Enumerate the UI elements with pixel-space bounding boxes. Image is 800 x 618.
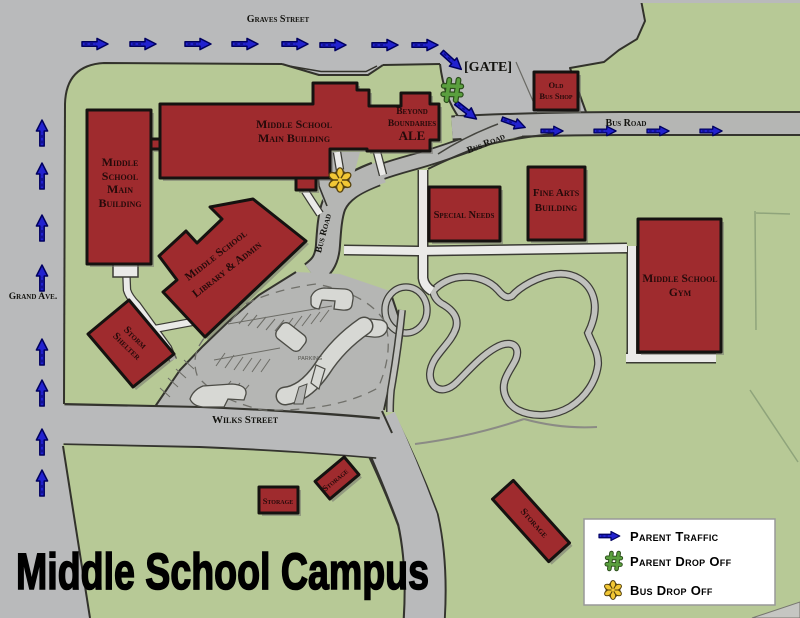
svg-text:Graves Street: Graves Street [247,14,310,25]
svg-text:Beyond: Beyond [396,107,428,117]
svg-text:Parent Drop Off: Parent Drop Off [630,554,732,569]
svg-text:Old: Old [549,80,565,90]
svg-text:Storage: Storage [263,496,294,506]
svg-text:[GATE]: [GATE] [464,60,512,75]
svg-text:PARKING: PARKING [298,356,322,362]
svg-text:School: School [102,169,138,183]
svg-text:Building: Building [98,196,141,210]
svg-text:Wilks Street: Wilks Street [212,414,279,426]
svg-text:Main: Main [107,182,133,196]
svg-text:Bus Road: Bus Road [606,118,647,129]
svg-text:Gym: Gym [669,287,692,299]
svg-text:Special Needs: Special Needs [434,210,495,221]
svg-text:Middle School: Middle School [256,117,332,131]
svg-text:Middle: Middle [102,155,139,169]
svg-text:Bus Drop Off: Bus Drop Off [630,583,713,598]
svg-text:ALE: ALE [399,128,426,143]
svg-text:Building: Building [535,202,577,214]
svg-text:Bus Shop: Bus Shop [539,91,573,101]
svg-text:Middle School: Middle School [642,273,717,285]
svg-text:Grand Ave.: Grand Ave. [9,292,57,302]
svg-text:Parent Traffic: Parent Traffic [630,529,719,544]
svg-text:Middle School Campus: Middle School Campus [16,543,429,600]
svg-text:Fine Arts: Fine Arts [533,187,580,199]
svg-text:Main Building: Main Building [258,131,330,145]
